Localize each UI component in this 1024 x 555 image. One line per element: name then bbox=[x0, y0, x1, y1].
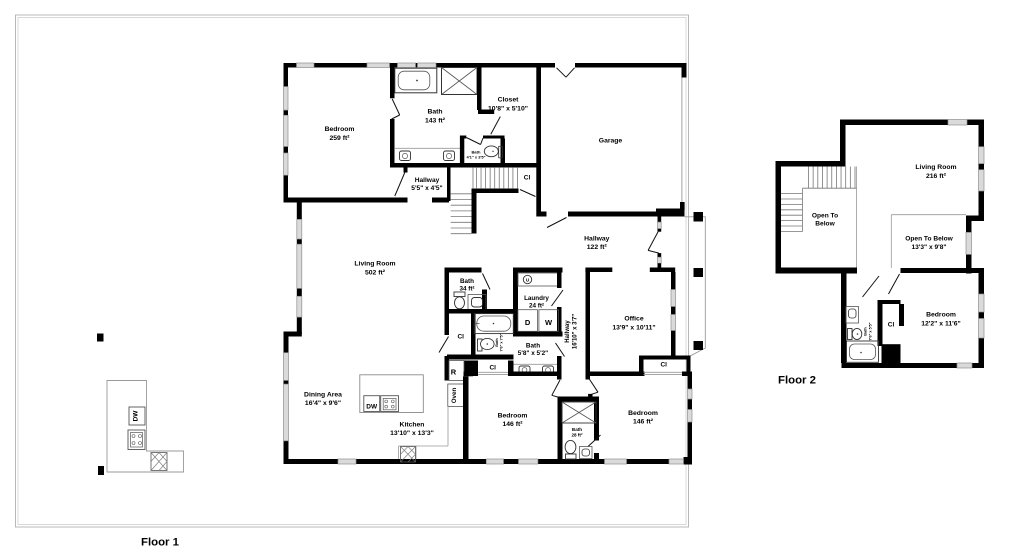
svg-text:W: W bbox=[545, 318, 553, 327]
svg-text:Bedroom: Bedroom bbox=[628, 410, 658, 417]
svg-text:Bedroom: Bedroom bbox=[325, 126, 355, 133]
svg-text:259 ft²: 259 ft² bbox=[329, 135, 350, 142]
svg-text:7'6" x 5'5": 7'6" x 5'5" bbox=[868, 322, 872, 340]
svg-text:122 ft²: 122 ft² bbox=[587, 244, 608, 251]
svg-text:143 ft²: 143 ft² bbox=[425, 118, 446, 125]
svg-text:10'8" x 5'10": 10'8" x 5'10" bbox=[488, 106, 528, 113]
svg-text:Dining Area: Dining Area bbox=[304, 392, 342, 399]
svg-text:34 ft²: 34 ft² bbox=[459, 286, 474, 293]
svg-text:4'1" x 3'5": 4'1" x 3'5" bbox=[466, 154, 485, 159]
svg-text:Bath: Bath bbox=[427, 109, 442, 116]
svg-text:DW: DW bbox=[366, 404, 378, 411]
svg-text:28 ft²: 28 ft² bbox=[572, 433, 583, 438]
svg-text:U: U bbox=[526, 277, 529, 282]
svg-text:D: D bbox=[525, 318, 531, 327]
svg-text:502 ft²: 502 ft² bbox=[365, 270, 386, 277]
svg-text:Garage: Garage bbox=[599, 138, 623, 145]
svg-text:Open To Below: Open To Below bbox=[905, 236, 953, 243]
svg-text:Bedroom: Bedroom bbox=[498, 413, 528, 420]
svg-text:24 ft²: 24 ft² bbox=[529, 303, 544, 310]
svg-text:13'9" x 10'11": 13'9" x 10'11" bbox=[612, 325, 655, 332]
svg-text:216 ft²: 216 ft² bbox=[926, 173, 947, 180]
svg-text:Hallway: Hallway bbox=[565, 320, 571, 343]
svg-text:Kitchen: Kitchen bbox=[400, 422, 425, 429]
svg-text:13'10" x 13'3": 13'10" x 13'3" bbox=[390, 430, 434, 437]
svg-text:Below: Below bbox=[815, 221, 835, 228]
svg-text:13'3" x 9'8": 13'3" x 9'8" bbox=[911, 244, 946, 251]
svg-text:Bath: Bath bbox=[572, 427, 582, 432]
svg-text:146 ft²: 146 ft² bbox=[633, 419, 654, 426]
svg-text:Bath: Bath bbox=[526, 343, 540, 350]
svg-text:7'6" x 7'5": 7'6" x 7'5" bbox=[500, 333, 504, 351]
svg-text:Floor 2: Floor 2 bbox=[778, 375, 816, 387]
svg-text:Oven: Oven bbox=[451, 388, 458, 404]
svg-text:Floor 1: Floor 1 bbox=[141, 537, 180, 549]
svg-text:R: R bbox=[451, 368, 457, 377]
svg-text:16'10" x 3'7": 16'10" x 3'7" bbox=[572, 314, 578, 349]
svg-text:Bedroom: Bedroom bbox=[926, 312, 956, 319]
svg-text:Closet: Closet bbox=[498, 97, 520, 104]
svg-text:Cl: Cl bbox=[457, 334, 464, 341]
svg-text:5'8" x 5'2": 5'8" x 5'2" bbox=[518, 350, 548, 357]
svg-text:5'5" x 4'5": 5'5" x 4'5" bbox=[411, 185, 442, 192]
svg-text:DW: DW bbox=[132, 410, 139, 422]
svg-text:Cl: Cl bbox=[888, 322, 895, 329]
svg-text:Bath: Bath bbox=[495, 338, 499, 347]
svg-text:Living Room: Living Room bbox=[915, 164, 956, 171]
svg-text:Office: Office bbox=[624, 316, 643, 323]
svg-text:Open To: Open To bbox=[812, 213, 838, 220]
svg-text:Living Room: Living Room bbox=[354, 261, 395, 268]
svg-text:12'2" x 11'6": 12'2" x 11'6" bbox=[921, 321, 961, 328]
svg-text:Laundry: Laundry bbox=[524, 295, 549, 302]
svg-text:Bath: Bath bbox=[460, 278, 474, 285]
svg-text:Hallway: Hallway bbox=[415, 177, 440, 184]
svg-text:Cl: Cl bbox=[660, 362, 667, 369]
svg-text:Bath: Bath bbox=[864, 327, 868, 336]
svg-text:Hallway: Hallway bbox=[584, 236, 610, 243]
svg-text:146 ft²: 146 ft² bbox=[502, 421, 523, 428]
svg-text:16'4" x 9'6": 16'4" x 9'6" bbox=[305, 400, 341, 407]
svg-text:Cl: Cl bbox=[524, 175, 531, 182]
svg-text:Cl: Cl bbox=[489, 365, 496, 372]
